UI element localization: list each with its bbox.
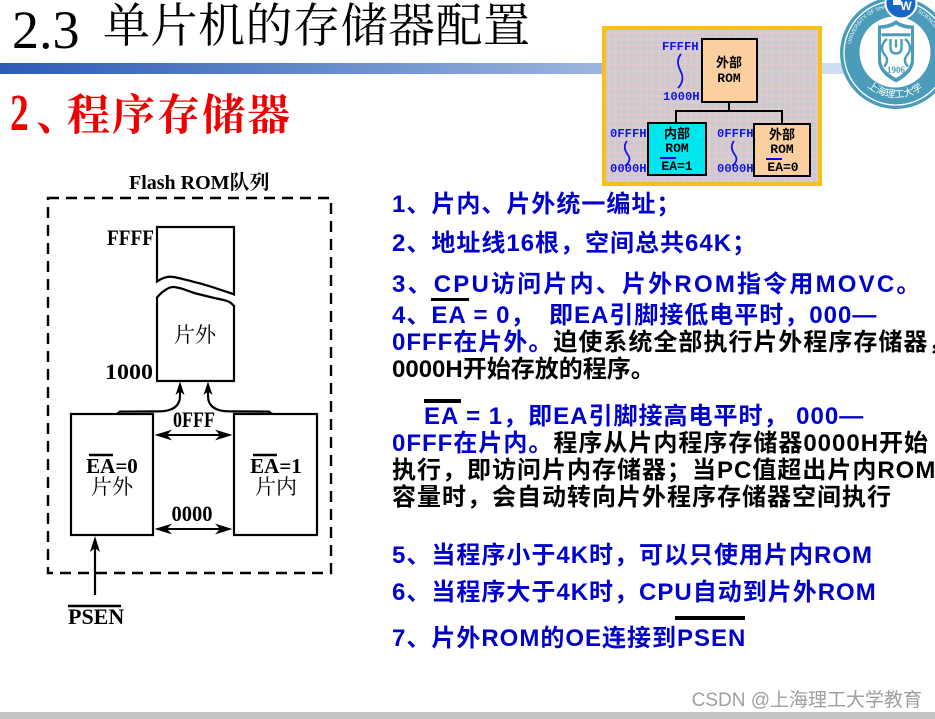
svg-text:外部: 外部	[716, 55, 742, 70]
svg-text:EA=0: EA=0	[767, 160, 798, 175]
svg-text:1000H: 1000H	[663, 90, 700, 104]
svg-text:0FFFH: 0FFFH	[610, 127, 647, 141]
svg-text:0FFF: 0FFF	[173, 407, 215, 432]
svg-text:EA=1: EA=1	[661, 159, 692, 174]
svg-text:0FFFH: 0FFFH	[717, 127, 754, 141]
svg-text:FFFFH: FFFFH	[662, 40, 699, 54]
svg-text:1000: 1000	[105, 359, 153, 384]
svg-text:PSEN: PSEN	[68, 604, 124, 629]
svg-text:片内: 片内	[255, 475, 297, 499]
svg-text:1906: 1906	[887, 65, 906, 75]
svg-text:Flash ROM队列: Flash ROM队列	[129, 171, 270, 194]
svg-text:W: W	[900, 0, 912, 13]
svg-text:0000: 0000	[172, 501, 213, 526]
svg-text:FFFF: FFFF	[107, 225, 154, 250]
svg-text:片外: 片外	[174, 323, 217, 347]
svg-text:ROM: ROM	[717, 71, 741, 86]
svg-text:外部: 外部	[769, 127, 795, 142]
svg-text:内部: 内部	[664, 126, 690, 141]
svg-text:片外: 片外	[91, 475, 134, 499]
svg-text:ROM: ROM	[665, 141, 689, 156]
svg-text:ROM: ROM	[770, 142, 794, 157]
